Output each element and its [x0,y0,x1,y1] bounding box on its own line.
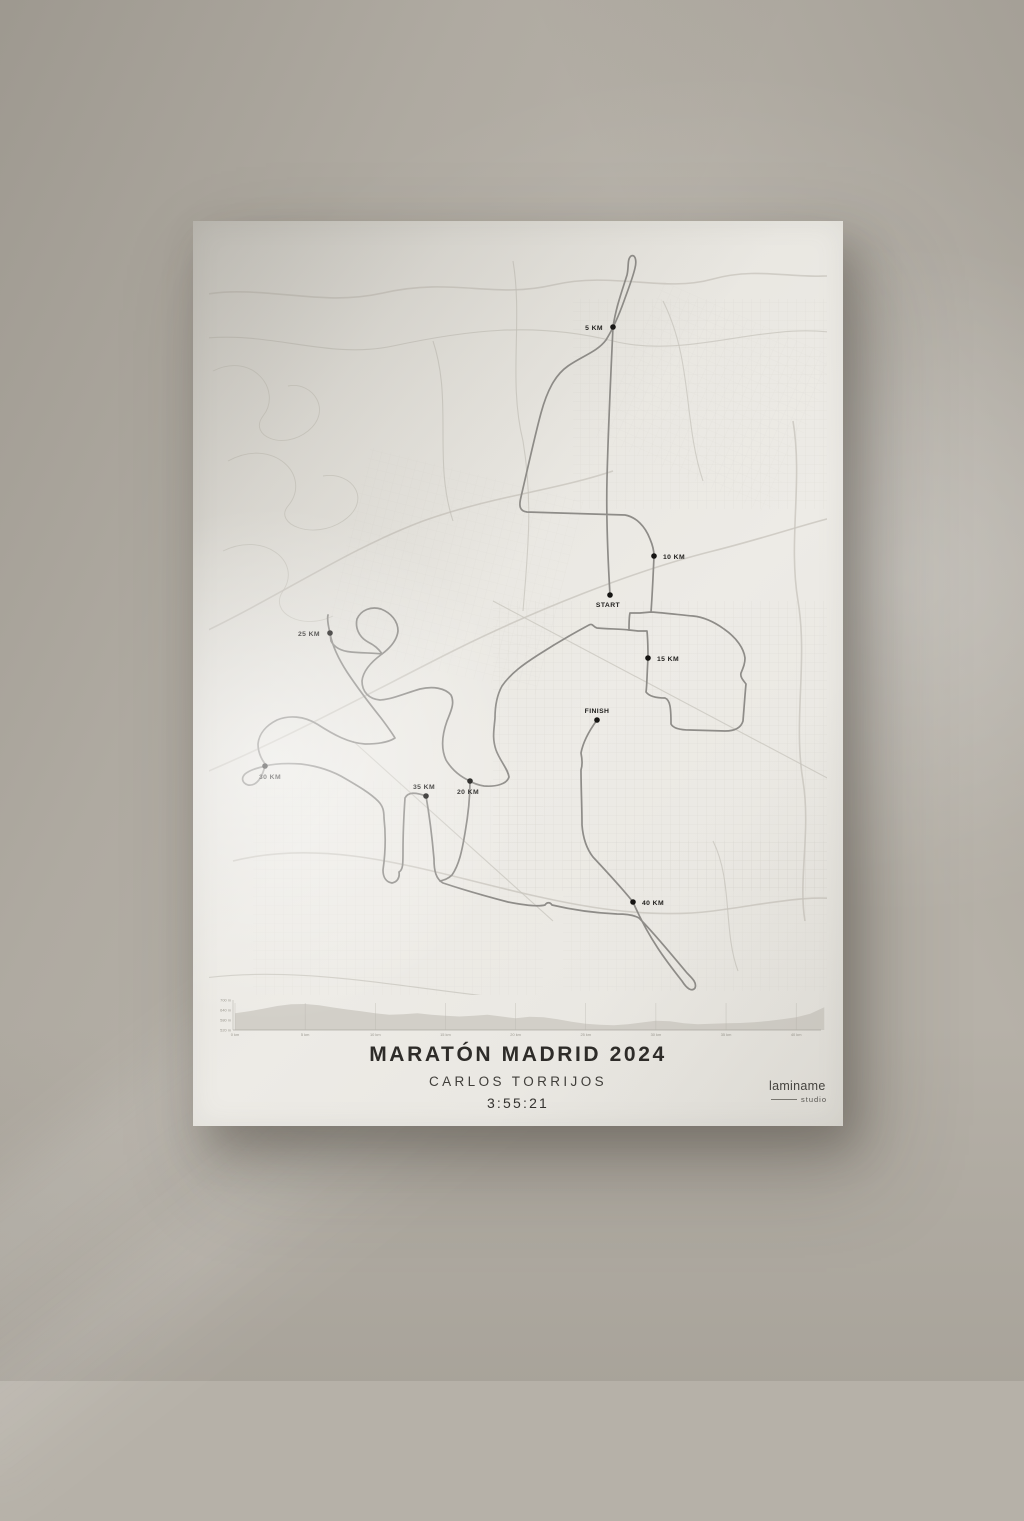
brand-sub-row: studio [771,1095,841,1104]
elevation-y-tick: 580 m [220,1018,231,1023]
km-marker-dot [651,553,657,559]
poster-title: MARATÓN MADRID 2024 [193,1043,843,1067]
km-marker-label: 15 KM [657,656,679,663]
elevation-x-tick: 40 km [791,1032,802,1037]
km-marker-label: 25 KM [298,631,320,638]
km-marker-dot [327,630,333,636]
elevation-x-tick: 15 km [440,1032,451,1037]
km-marker-label: 40 KM [642,900,664,907]
madrid-map: START5 KM10 KM15 KM20 KM25 KM30 KM35 KM4… [193,221,843,1126]
km-marker-dot [423,793,429,799]
elevation-y-tick: 700 m [220,998,231,1003]
km-marker-dot [607,592,613,598]
km-marker-label: 10 KM [663,554,685,561]
elevation-y-tick: 520 m [220,1028,231,1033]
brand-line [771,1099,797,1100]
elevation-x-tick: 5 km [301,1032,309,1037]
km-marker-label: 30 KM [259,774,281,781]
km-marker-dot [610,324,616,330]
elevation-y-tick: 640 m [220,1008,231,1013]
km-marker-label: FINISH [585,708,610,715]
runner-name: CARLOS TORRIJOS [193,1074,843,1089]
elevation-x-tick: 10 km [370,1032,381,1037]
km-marker-label: START [596,602,621,609]
km-marker-dot [630,899,636,905]
marathon-poster: START5 KM10 KM15 KM20 KM25 KM30 KM35 KM4… [193,221,843,1126]
elevation-x-tick: 25 km [580,1032,591,1037]
elevation-x-tick: 35 km [721,1032,732,1037]
km-marker-label: 20 KM [457,789,479,796]
km-marker-dot [262,763,268,769]
elevation-x-tick: 0 km [231,1032,239,1037]
elevation-x-tick: 30 km [651,1032,662,1037]
km-marker-label: 5 KM [585,325,603,332]
km-marker-dot [594,717,600,723]
km-marker-dot [467,778,473,784]
km-marker-dot [645,655,651,661]
finish-time: 3:55:21 [193,1095,843,1111]
brand-name: laminame [769,1079,841,1093]
km-marker-label: 35 KM [413,784,435,791]
scene: { "poster": { "title": "MARATÓN MADRID 2… [0,0,1024,1381]
elevation-area [235,1004,824,1030]
elevation-profile-chart: 0 km5 km10 km15 km20 km25 km30 km35 km40… [220,998,824,1038]
brand-sub: studio [801,1095,827,1104]
elevation-x-tick: 20 km [510,1032,521,1037]
brand-logo: laminame studio [769,1079,841,1104]
